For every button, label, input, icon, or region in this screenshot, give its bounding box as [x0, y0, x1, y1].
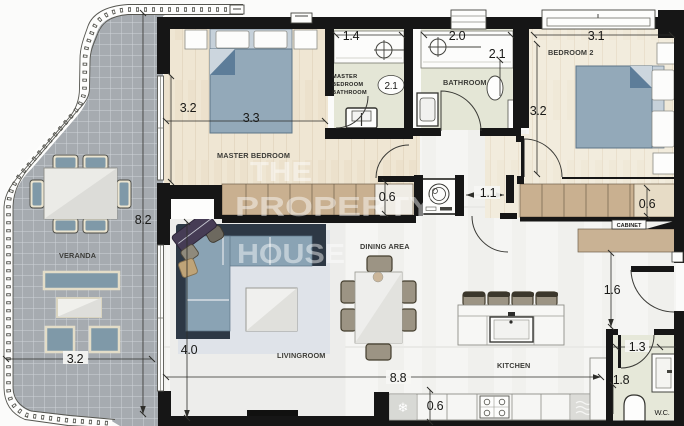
svg-text:1.3: 1.3 [629, 340, 646, 354]
svg-text:HOUSE: HOUSE [237, 238, 345, 269]
svg-text:BATHROOM: BATHROOM [443, 78, 487, 87]
svg-text:1.4: 1.4 [343, 29, 360, 43]
svg-text:W.C.: W.C. [654, 408, 669, 417]
svg-text:3.3: 3.3 [243, 111, 260, 125]
svg-text:❄: ❄ [398, 400, 409, 415]
svg-text:0.6: 0.6 [427, 399, 444, 413]
svg-text:3.2: 3.2 [530, 104, 547, 118]
svg-text:2.1: 2.1 [384, 81, 398, 92]
svg-text:0.6: 0.6 [379, 190, 396, 204]
svg-text:THE: THE [250, 156, 312, 187]
svg-text:BEDROOM: BEDROOM [332, 82, 363, 88]
svg-text:1.8: 1.8 [613, 373, 630, 387]
svg-text:4.0: 4.0 [181, 343, 198, 357]
svg-text:VERANDA: VERANDA [59, 251, 97, 260]
svg-text:MASTER BEDROOM: MASTER BEDROOM [217, 151, 290, 160]
svg-text:LIVINGROOM: LIVINGROOM [277, 351, 326, 360]
svg-text:2.1: 2.1 [489, 47, 506, 61]
svg-text:8.8: 8.8 [390, 371, 407, 385]
svg-text:3.2: 3.2 [180, 101, 197, 115]
svg-text:2.0: 2.0 [449, 29, 466, 43]
svg-text:CABINET: CABINET [617, 223, 642, 229]
svg-text:3.1: 3.1 [588, 29, 605, 43]
svg-text:DINING AREA: DINING AREA [360, 242, 410, 251]
svg-text:8.2: 8.2 [135, 213, 152, 227]
svg-text:1.6: 1.6 [604, 283, 621, 297]
svg-text:BEDROOM 2: BEDROOM 2 [548, 48, 594, 57]
svg-text:3.2: 3.2 [67, 352, 84, 366]
svg-text:BATHROOM: BATHROOM [332, 90, 367, 96]
svg-text:1.1: 1.1 [480, 186, 497, 200]
svg-text:0.6: 0.6 [639, 197, 656, 211]
svg-text:KITCHEN: KITCHEN [497, 361, 530, 370]
svg-text:MASTER: MASTER [332, 74, 357, 80]
svg-text:PROPERTY: PROPERTY [235, 191, 433, 222]
